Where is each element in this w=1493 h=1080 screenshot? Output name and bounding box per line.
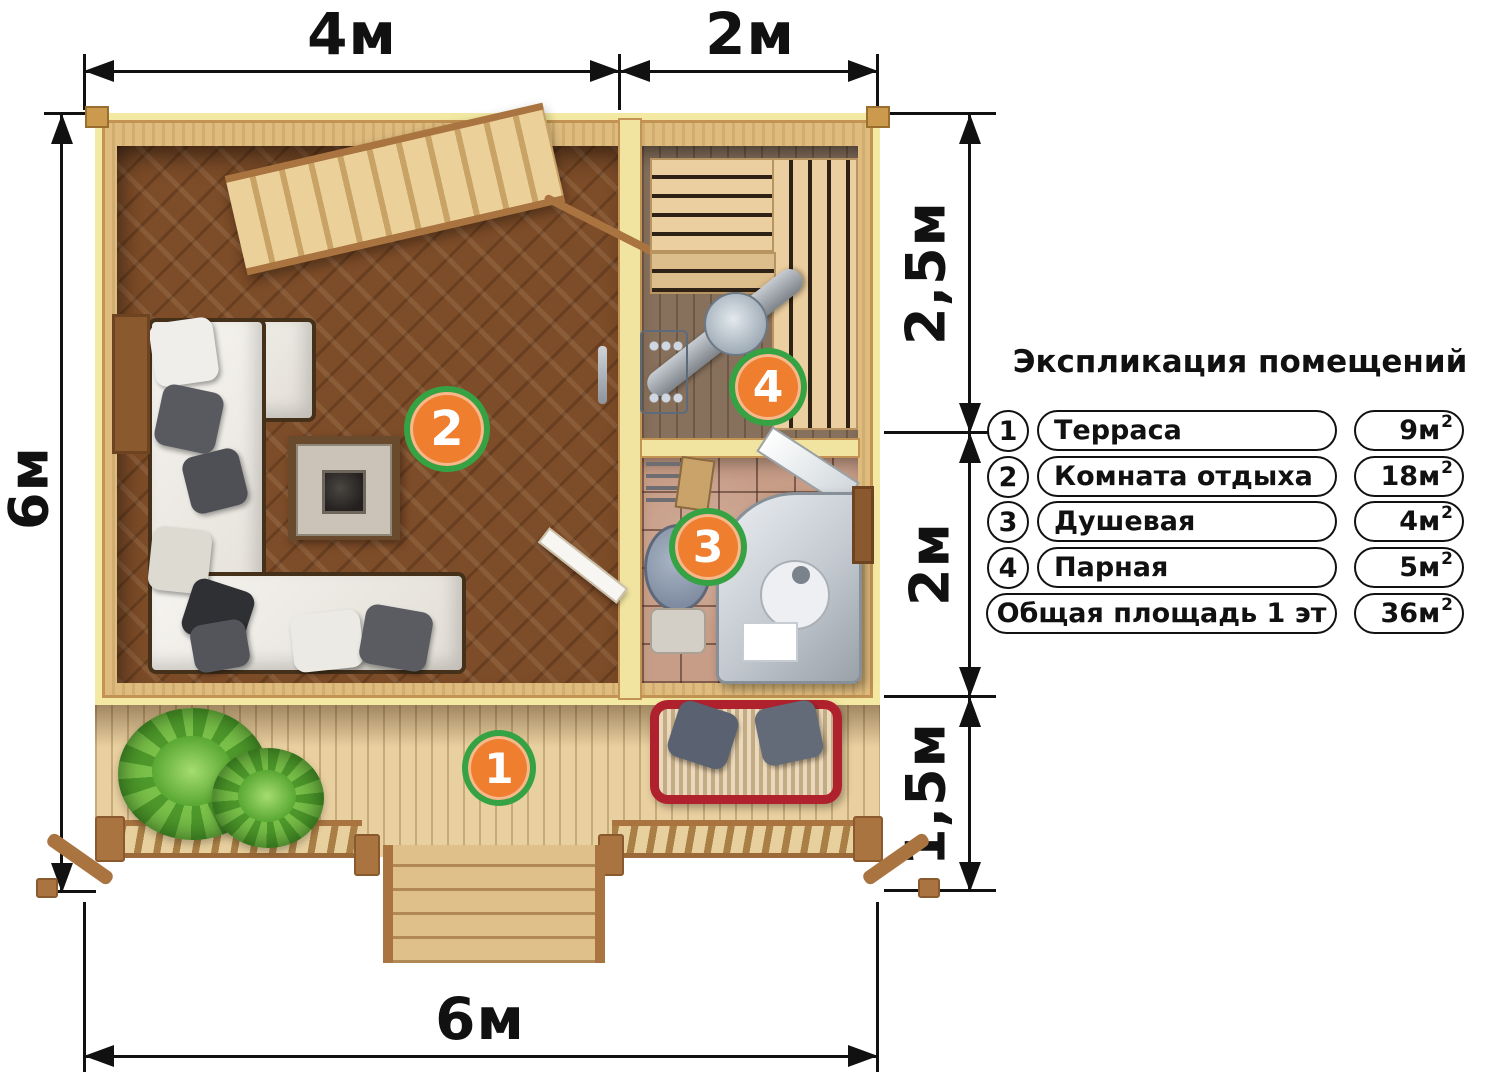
brace-foot-left xyxy=(36,878,58,898)
dim-arrow-left-icon xyxy=(84,60,114,82)
badge-number: 1 xyxy=(484,744,513,793)
dim-arrow-right-icon xyxy=(590,60,620,82)
dim-arrow-up-icon xyxy=(959,433,981,463)
wood-shelf xyxy=(675,456,716,512)
legend-row-name: Комната отдыха xyxy=(1037,456,1337,497)
shower-faucet xyxy=(792,566,810,584)
sofa-pillow xyxy=(289,609,365,674)
corner-log-right xyxy=(866,106,890,128)
bathhouse-floor-plan: 4м 2м 6м 2,5м 2м 1,5м 6м xyxy=(0,0,1493,1080)
legend-row-number: 1 xyxy=(987,410,1029,452)
dim-label-top-4m: 4м xyxy=(252,2,452,66)
dim-line-right xyxy=(968,114,971,892)
plant-small-core xyxy=(238,770,296,822)
legend-area-text: 5м xyxy=(1399,552,1440,583)
railing-post-far-right xyxy=(853,816,883,862)
dim-arrow-right-icon xyxy=(848,60,878,82)
legend-total-name: Общая площадь 1 эт xyxy=(986,593,1337,634)
legend-row-number: 2 xyxy=(987,456,1029,498)
room-badge-3: 3 xyxy=(669,508,747,586)
legend-area-text: 36м xyxy=(1381,598,1441,629)
window-left-glass xyxy=(119,321,143,447)
shower-shelf xyxy=(742,622,798,662)
legend-row-number: 4 xyxy=(987,547,1029,589)
legend-name-text: Парная xyxy=(1054,552,1168,583)
corner-log-left xyxy=(85,106,109,128)
dim-arrow-up-icon xyxy=(959,114,981,144)
dim-arrow-up-icon xyxy=(51,114,73,144)
dim-label-top-2m: 2м xyxy=(650,2,850,66)
railing-post-step-left xyxy=(354,834,380,876)
room-badge-4: 4 xyxy=(729,348,807,426)
table-picture-frame xyxy=(322,470,366,514)
dim-label-right-2-5m: 2,5м xyxy=(896,182,956,364)
legend-row-name: Терраса xyxy=(1037,410,1337,451)
legend-row-area: 9м2 xyxy=(1354,410,1464,451)
legend-row-area: 18м2 xyxy=(1354,456,1464,497)
legend-area-sup: 2 xyxy=(1441,412,1453,432)
legend-title: Экспликация помещений xyxy=(1005,344,1475,380)
sofa-pillow xyxy=(357,603,434,674)
sauna-stove xyxy=(640,330,688,414)
dim-line-top-2m xyxy=(620,70,878,73)
dim-arrow-left-icon xyxy=(620,60,650,82)
dim-arrow-down-icon xyxy=(959,403,981,433)
brace-foot-right xyxy=(918,878,940,898)
legend-name-text: Терраса xyxy=(1054,415,1182,446)
legend-name-text: Комната отдыха xyxy=(1054,461,1313,492)
legend-row-name: Парная xyxy=(1037,547,1337,588)
legend-area-sup: 2 xyxy=(1441,549,1453,569)
legend-row-number: 3 xyxy=(987,501,1029,543)
legend-total-area: 36м2 xyxy=(1354,593,1464,634)
sauna-bench-step xyxy=(650,252,776,294)
dim-arrow-down-icon xyxy=(959,667,981,697)
dim-line-top-4m xyxy=(84,70,621,73)
dim-line-bottom-6m xyxy=(84,1055,878,1058)
legend-name-text: Душевая xyxy=(1054,506,1195,537)
badge-number: 4 xyxy=(753,362,784,413)
wall-divider-vertical xyxy=(618,118,642,700)
door-handle xyxy=(598,346,607,404)
sofa-pillow xyxy=(188,618,251,675)
window-right-frame xyxy=(852,486,874,564)
legend-name-text: Общая площадь 1 эт xyxy=(997,598,1327,629)
dim-label-left-6m: 6м xyxy=(0,400,58,576)
sofa-pillow xyxy=(148,316,220,388)
dim-label-bottom-6m: 6м xyxy=(395,986,565,1052)
legend-area-sup: 2 xyxy=(1441,458,1453,478)
legend-row-area: 5м2 xyxy=(1354,547,1464,588)
toilet-base xyxy=(650,608,706,654)
dim-arrow-up-icon xyxy=(959,697,981,727)
dim-label-right-2m: 2м xyxy=(902,498,958,630)
room-badge-2: 2 xyxy=(404,386,490,472)
legend-area-sup: 2 xyxy=(1441,595,1453,615)
legend-row-name: Душевая xyxy=(1037,501,1337,542)
room-badge-1: 1 xyxy=(462,730,536,806)
dim-arrow-left-icon xyxy=(84,1045,114,1067)
legend-area-sup: 2 xyxy=(1441,503,1453,523)
legend-area-text: 9м xyxy=(1399,415,1440,446)
sofa-pillow xyxy=(152,382,226,456)
chimney-vent xyxy=(704,292,768,356)
legend-area-text: 18м xyxy=(1381,461,1441,492)
legend-row-area: 4м2 xyxy=(1354,501,1464,542)
railing-post-far-left xyxy=(95,816,125,862)
legend-area-text: 4м xyxy=(1399,506,1440,537)
dim-arrow-down-icon xyxy=(959,862,981,892)
badge-number: 3 xyxy=(693,522,724,573)
wall-divider-horizontal xyxy=(640,438,860,458)
dim-arrow-right-icon xyxy=(848,1045,878,1067)
entry-steps xyxy=(383,845,605,963)
terrace-railing-right xyxy=(612,820,874,858)
badge-number: 2 xyxy=(430,401,463,457)
